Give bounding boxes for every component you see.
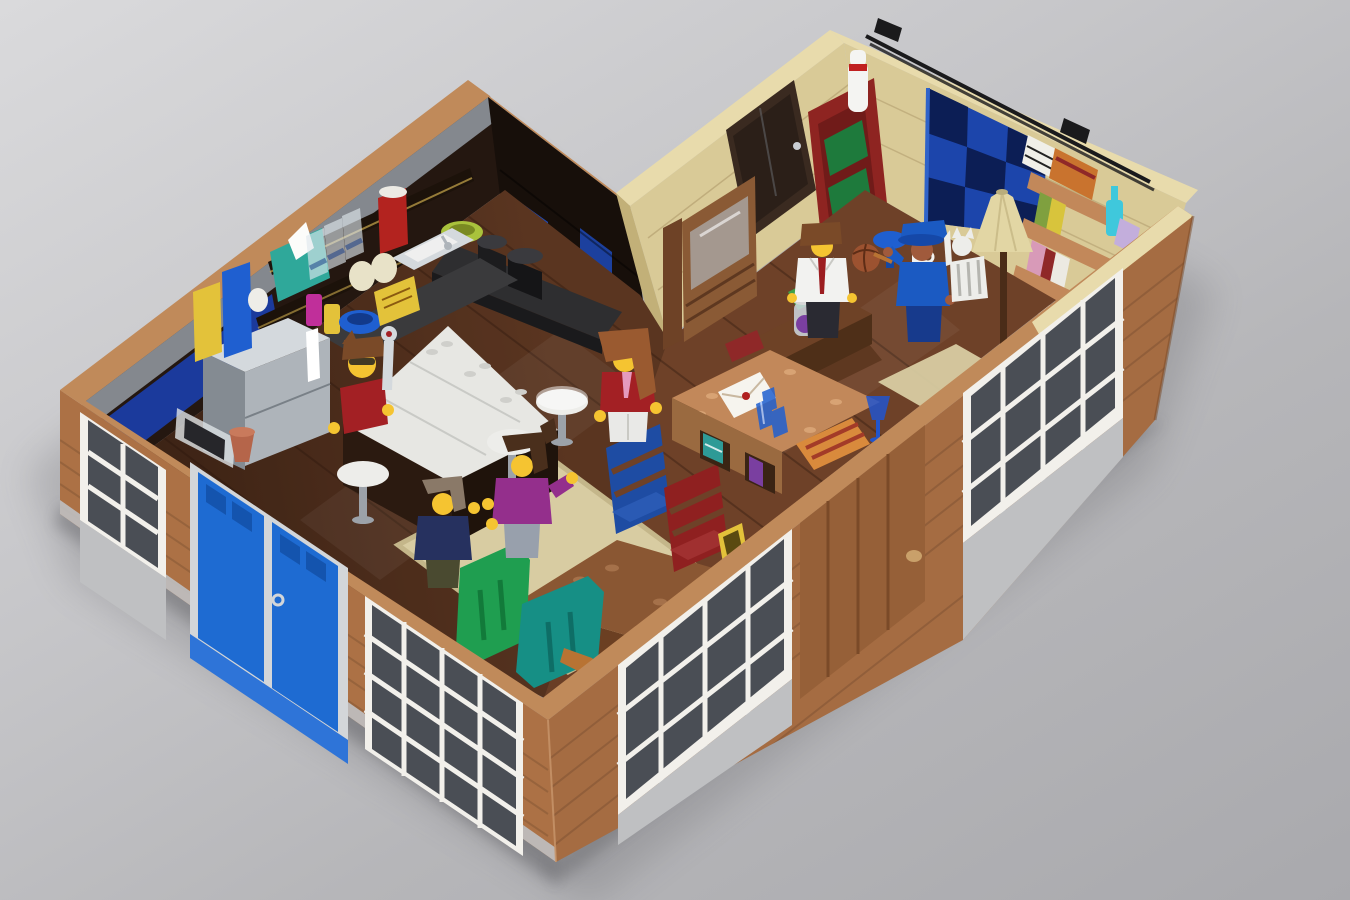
door-handle	[793, 142, 801, 150]
white-bottle	[848, 50, 868, 112]
door-knob	[906, 550, 922, 562]
render-canvas: LEGO interior render: corner diner-kitch…	[0, 0, 1350, 900]
glasses	[349, 358, 375, 365]
lego-room-render: LEGO interior render: corner diner-kitch…	[0, 0, 1350, 900]
yellow-cup	[324, 304, 340, 334]
fridge-handle	[306, 328, 320, 382]
blue-bowl	[339, 310, 381, 334]
magenta-cup	[306, 294, 322, 326]
